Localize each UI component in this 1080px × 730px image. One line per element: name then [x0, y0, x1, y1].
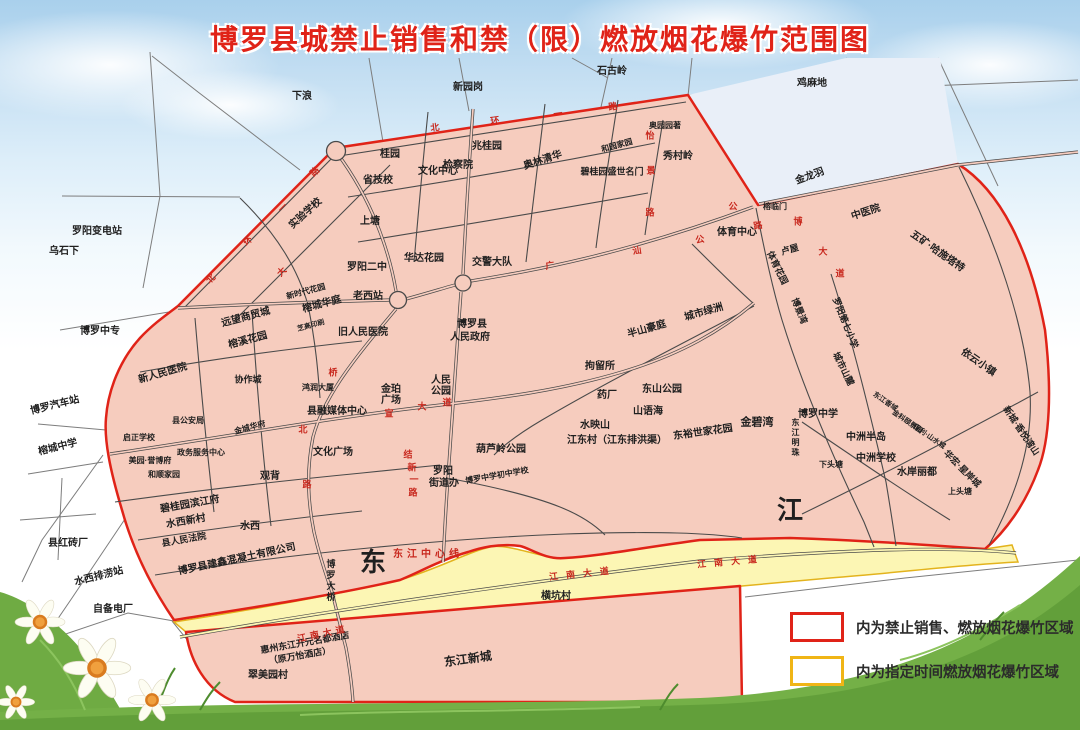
map-label: 罗阳第七小学: [831, 296, 860, 349]
map-label: 金碧湾: [741, 418, 774, 429]
map-label: 旧人民医院: [338, 328, 388, 338]
map-label: 老西站: [353, 292, 383, 302]
legend: 内为禁止销售、燃放烟花爆竹区域 内为指定时间燃放烟花爆竹区域: [790, 612, 1070, 700]
map-label: 新: [407, 464, 416, 473]
map-label: 广场: [381, 396, 401, 406]
map-label: 华达花园: [404, 254, 444, 264]
map-label: 博罗县建鑫混凝土有限公司: [177, 543, 296, 578]
map-label: 水西排涝站: [74, 566, 125, 588]
map-label: 石古岭: [597, 67, 627, 77]
map-label: 博罗县: [457, 320, 487, 330]
map-label: 东裕世家花园: [673, 424, 734, 442]
map-label: 榕溪花园: [227, 331, 268, 351]
legend-swatch-designated: [790, 656, 844, 686]
map-label: 卢屋: [780, 243, 800, 257]
map-label: 大: [276, 266, 289, 279]
map-label: 中洲学校: [856, 454, 896, 464]
map-label: 桂园: [380, 150, 400, 160]
map-label: 芝高印刷: [297, 319, 326, 333]
map-label: 葫芦岭公园: [476, 445, 526, 455]
map-label: 金龙羽: [794, 167, 826, 187]
map-label: 县融媒体中心: [307, 407, 367, 417]
map-label: 省技校: [363, 176, 393, 186]
map-label: 奥园园著: [649, 122, 681, 130]
map-label: 检察院: [443, 161, 473, 171]
map-label: 乌石下: [49, 247, 79, 257]
map-label: 水西新村: [165, 514, 206, 531]
map-label: 北: [298, 426, 307, 435]
map-label: 榕临门: [763, 203, 787, 211]
legend-label-designated: 内为指定时间燃放烟花爆竹区域: [856, 661, 1059, 682]
map-label: 拘留所: [585, 362, 615, 372]
map-label: 江南大道: [549, 566, 618, 582]
map-label: 协作城: [234, 376, 261, 385]
map-label: 上头塘: [948, 488, 972, 496]
map-label: 新城·香悦湾山: [1001, 405, 1040, 457]
map-label: 环: [242, 235, 255, 248]
map-label: 华宏·星岸城: [942, 449, 982, 489]
map-label: 保利·山水城: [912, 423, 947, 450]
map-label: 奥林清华: [522, 150, 563, 172]
map-label: 环: [490, 116, 500, 126]
legend-label-prohibited: 内为禁止销售、燃放烟花爆竹区域: [856, 617, 1074, 638]
map-label: 公: [728, 203, 737, 212]
map-label: 道: [835, 270, 844, 279]
map-label: 人民政府: [450, 333, 490, 343]
map-label: 山语海: [633, 407, 663, 417]
map-label: 碧桂园滨江府: [160, 495, 221, 515]
map-label: 路: [408, 489, 417, 498]
map-label: 桥: [328, 369, 337, 378]
map-label: 东江明珠: [791, 418, 799, 458]
map-label: 罗阳二中: [347, 263, 387, 273]
map-label: 自备电厂: [93, 605, 133, 615]
map-label: 博罗大桥: [326, 559, 335, 603]
map-label: 路: [753, 221, 763, 231]
map-label: 药厂: [597, 391, 617, 401]
map-label: 碧桂园盛世名门: [580, 168, 643, 177]
map-label: 五矿·哈施塔特: [908, 230, 966, 275]
map-label: 半山豪庭: [626, 320, 667, 341]
map-label: 博罗中专: [80, 327, 120, 337]
map-label: 博罗中学初中学校: [465, 467, 529, 486]
map-label: 横坑村: [541, 592, 571, 602]
legend-row-designated: 内为指定时间燃放烟花爆竹区域: [790, 656, 1070, 686]
map-label: 汕: [632, 246, 642, 256]
map-label: 博: [793, 218, 802, 227]
map-label: 城市山麓: [831, 351, 855, 387]
map-label: 怡: [645, 132, 654, 141]
map-label: 中洲半岛: [846, 433, 886, 443]
map-screenshot: 下浪新园岗石古岭鸡麻地罗阳变电站乌石下博罗中专博罗汽车站榕城中学县红砖厂水西排涝…: [0, 0, 1080, 730]
map-label: 县公安局: [172, 417, 204, 425]
map-label: 公园: [431, 387, 451, 397]
map-label: 博罗汽车站: [30, 395, 81, 417]
map-label: 鸿润大厦: [302, 384, 334, 392]
map-label: 一: [277, 202, 290, 215]
map-label: 水映山: [580, 421, 610, 431]
map-label: 街道办: [429, 479, 459, 489]
map-label: 政务服务中心: [177, 449, 225, 457]
map-label: 广: [545, 261, 555, 271]
map-label: 北: [205, 273, 218, 286]
map-label: 新人民医院: [138, 362, 189, 385]
map-label: 公: [695, 235, 705, 245]
map-label: 人民: [431, 376, 451, 386]
map-label: 江: [777, 497, 803, 523]
map-label: 远望商贸城: [221, 307, 272, 330]
map-label: 美园·誉博府: [129, 457, 172, 465]
map-label: 和园家园: [601, 138, 634, 154]
map-label: 榕城华庭: [301, 295, 342, 315]
map-label: 路: [302, 481, 311, 490]
map-label: 大: [818, 248, 827, 257]
map-label: 博罗中学: [798, 410, 838, 420]
map-label: 路: [645, 209, 654, 218]
map-label: 交警大队: [472, 258, 512, 268]
map-label: 新园岗: [453, 83, 483, 93]
map-label: 下浪: [292, 92, 312, 102]
map-label: 城市绿洲: [683, 303, 724, 324]
map-label: 东山公园: [642, 385, 682, 395]
map-label: 路: [309, 166, 322, 179]
map-label: 依云小镇: [959, 347, 998, 378]
map-label: 北: [430, 123, 440, 133]
map-label: 大: [417, 403, 426, 412]
legend-row-prohibited: 内为禁止销售、燃放烟花爆竹区域: [790, 612, 1070, 642]
map-label: 和顺家园: [148, 471, 180, 479]
map-label: 实验学校: [288, 197, 324, 231]
map-label: 路: [608, 102, 618, 112]
legend-swatch-prohibited: [790, 612, 844, 642]
map-label: 东江新城: [443, 650, 492, 669]
map-label: 下头塘: [819, 461, 843, 469]
map-label: 中医院: [850, 204, 882, 223]
map-label: 鸡麻地: [797, 79, 827, 89]
map-label: 上塘: [360, 217, 380, 227]
map-title: 博罗县城禁止销售和禁（限）燃放烟花爆竹范围图: [0, 18, 1080, 58]
map-label: 道: [442, 399, 451, 408]
map-label: 秀村岭: [663, 152, 693, 162]
map-label: 县人民法院: [161, 532, 207, 549]
map-label: 水西: [240, 522, 260, 532]
map-label: 罗阳变电站: [72, 227, 122, 237]
map-label: 景: [646, 167, 655, 176]
map-label: 水岸丽都: [897, 468, 937, 478]
map-label: 兆桂园: [472, 142, 502, 152]
map-label: 博景湾: [790, 297, 808, 325]
map-label: 金珀: [381, 385, 401, 395]
map-label: 翠美园村: [248, 671, 288, 681]
map-label: 榕城中学: [37, 438, 78, 457]
map-label: 江东村（江东排洪渠）: [567, 436, 667, 446]
map-label: 县红砖厂: [48, 539, 88, 549]
map-label: 体育中心: [717, 228, 757, 238]
map-label: 东: [360, 549, 386, 575]
map-label: 观背: [260, 472, 280, 482]
map-label: 一: [409, 476, 418, 485]
map-label: 金城华府: [234, 420, 267, 436]
map-label: 东江中心线: [393, 550, 463, 560]
map-label: 一: [553, 109, 563, 119]
map-label: 宣: [384, 410, 393, 419]
map-label: 启正学校: [123, 434, 155, 442]
map-label: 罗阳: [433, 467, 453, 477]
map-label: 文化广场: [313, 448, 353, 458]
map-label: 江南大道: [697, 555, 766, 570]
map-label: 结: [403, 451, 412, 460]
